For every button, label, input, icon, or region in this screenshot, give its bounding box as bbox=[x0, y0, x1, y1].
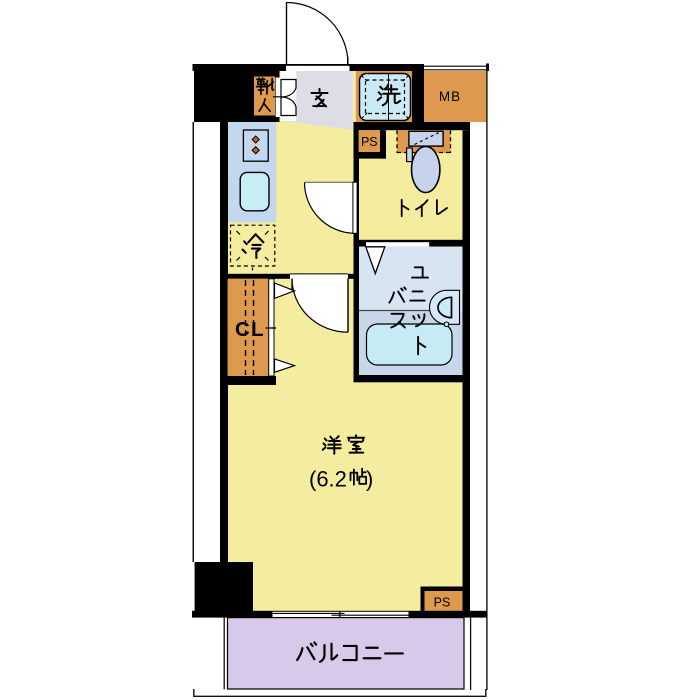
svg-text:CL: CL bbox=[235, 318, 265, 341]
svg-text:): ) bbox=[366, 467, 373, 492]
svg-text:MB: MB bbox=[439, 89, 461, 104]
svg-text:PS: PS bbox=[434, 595, 451, 609]
svg-text:PS: PS bbox=[361, 135, 378, 149]
svg-text:(6.2: (6.2 bbox=[309, 467, 347, 492]
